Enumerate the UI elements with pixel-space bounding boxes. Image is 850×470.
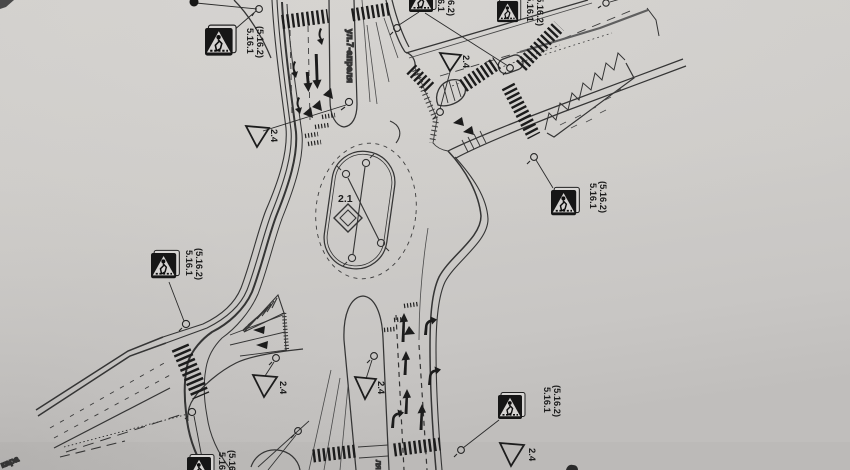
svg-text:5.16.1: 5.16.1	[184, 250, 194, 276]
svg-text:2.4: 2.4	[277, 381, 288, 395]
svg-text:2.1: 2.1	[338, 193, 353, 205]
svg-text:ля: ля	[374, 460, 384, 470]
svg-text:5.16.1: 5.16.1	[525, 0, 535, 22]
svg-text:(5.16.2): (5.16.2)	[552, 385, 562, 417]
svg-text:5.16.1: 5.16.1	[245, 28, 255, 54]
svg-text:(5.16.2): (5.16.2)	[194, 248, 204, 280]
svg-text:(5.16.2): (5.16.2)	[598, 181, 608, 213]
svg-text:5.16.1: 5.16.1	[542, 387, 552, 413]
svg-text:ул.7-апреля: ул.7-апреля	[345, 29, 355, 83]
svg-text:5.16.1: 5.16.1	[436, 0, 446, 12]
svg-text:(5.16.2): (5.16.2)	[227, 450, 237, 470]
svg-text:2.4: 2.4	[268, 129, 279, 143]
svg-text:2.4: 2.4	[526, 448, 537, 462]
svg-text:(5.16.2): (5.16.2)	[255, 26, 265, 58]
svg-text:2.4: 2.4	[460, 55, 471, 69]
svg-text:5.16.1: 5.16.1	[588, 183, 598, 209]
svg-text:5.16.1: 5.16.1	[217, 452, 227, 470]
svg-text:(5.16.2): (5.16.2)	[446, 0, 456, 16]
svg-text:2.4: 2.4	[375, 381, 386, 395]
svg-text:(5.16.2): (5.16.2)	[535, 0, 545, 26]
